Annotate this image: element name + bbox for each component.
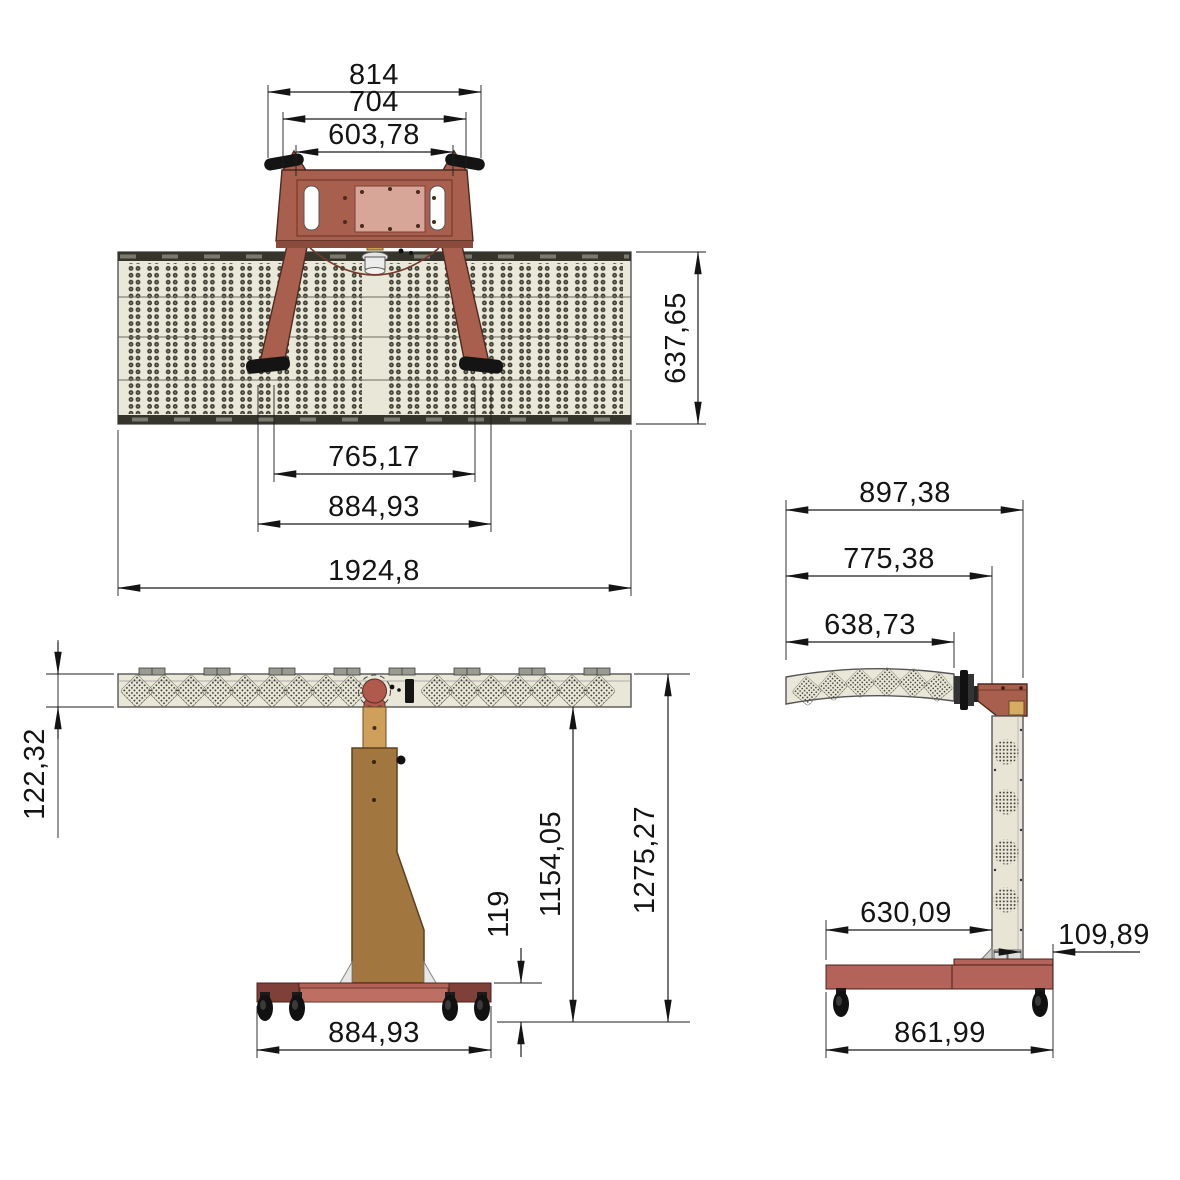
right-gusset [424, 962, 436, 983]
tilt-clamp-side [954, 670, 980, 710]
dim-label: 603,78 [328, 119, 420, 151]
dim-label: 1924,8 [328, 555, 420, 587]
pivot-hub [363, 679, 387, 703]
dim-front-under-bar-height: 1154,05 [535, 707, 573, 1022]
dim-side-panel-depth: 638,73 [786, 609, 954, 668]
column-screw [372, 798, 376, 802]
bolt-dot [399, 249, 404, 254]
mount-plate [355, 186, 425, 232]
side-view: 897,38 775,38 638,73 630,09 109,89 861,9… [786, 477, 1150, 1058]
dim-top-panel-depth: 637,65 [636, 252, 706, 424]
dim-side-base-depth: 861,99 [826, 992, 1053, 1058]
dim-label: 775,38 [843, 543, 935, 575]
dim-label: 704 [349, 86, 399, 118]
dim-label: 119 [483, 890, 515, 938]
dim-label: 884,93 [328, 491, 420, 523]
dim-label: 122,32 [19, 728, 51, 820]
dim-label: 765,17 [328, 441, 420, 473]
right-slot [430, 186, 445, 230]
bolt-dot [390, 685, 395, 690]
crossbar-shadow [276, 241, 473, 248]
caster-wheel [1032, 988, 1048, 1017]
connector-block [405, 679, 414, 703]
dim-label: 637,65 [660, 292, 692, 384]
dim-label: 897,38 [859, 477, 951, 509]
bolt-dot [409, 251, 413, 255]
front-view: 122,32 1154,05 1275,27 119 884,93 [19, 640, 690, 1058]
left-slot [304, 186, 319, 230]
dim-front-base-height: 119 [483, 890, 542, 1057]
adapter-screw [373, 726, 377, 730]
dim-label: 1154,05 [535, 811, 567, 917]
dim-label: 861,99 [894, 1017, 986, 1049]
engineering-drawing: 814 704 603,78 637,65 765,17 884,93 [0, 0, 1180, 1180]
dim-front-bar-height: 122,32 [19, 640, 114, 838]
dim-label: 884,93 [328, 1017, 420, 1049]
base-side [826, 959, 1053, 1017]
base-plate-side [826, 965, 1053, 989]
bolt-dot [397, 688, 401, 692]
dim-label: 109,89 [1058, 919, 1150, 951]
bracket-adapter-side [1009, 701, 1024, 715]
dim-label: 630,09 [860, 897, 952, 929]
dim-side-total-depth: 897,38 [786, 477, 1023, 678]
top-view: 814 704 603,78 637,65 765,17 884,93 [118, 59, 706, 596]
dim-label: 1275,27 [629, 806, 661, 914]
caster-wheel [833, 988, 849, 1017]
dim-label: 638,73 [824, 609, 916, 641]
base-front-bar [300, 988, 448, 1002]
side-knob [397, 756, 406, 765]
dim-front-total-height: 1275,27 [497, 674, 690, 1022]
dim-top-inner-width: 603,78 [296, 119, 453, 176]
panel-center-strip [362, 263, 388, 414]
stand-column-front [352, 748, 424, 983]
left-gusset [340, 962, 352, 983]
pivot-base-washer [365, 268, 385, 275]
column-screw [372, 760, 376, 764]
bracket-screw [1001, 686, 1005, 690]
dim-side-base-front-span: 630,09 [826, 897, 992, 960]
bracket-screw [1019, 686, 1023, 690]
base-front [257, 983, 491, 1021]
